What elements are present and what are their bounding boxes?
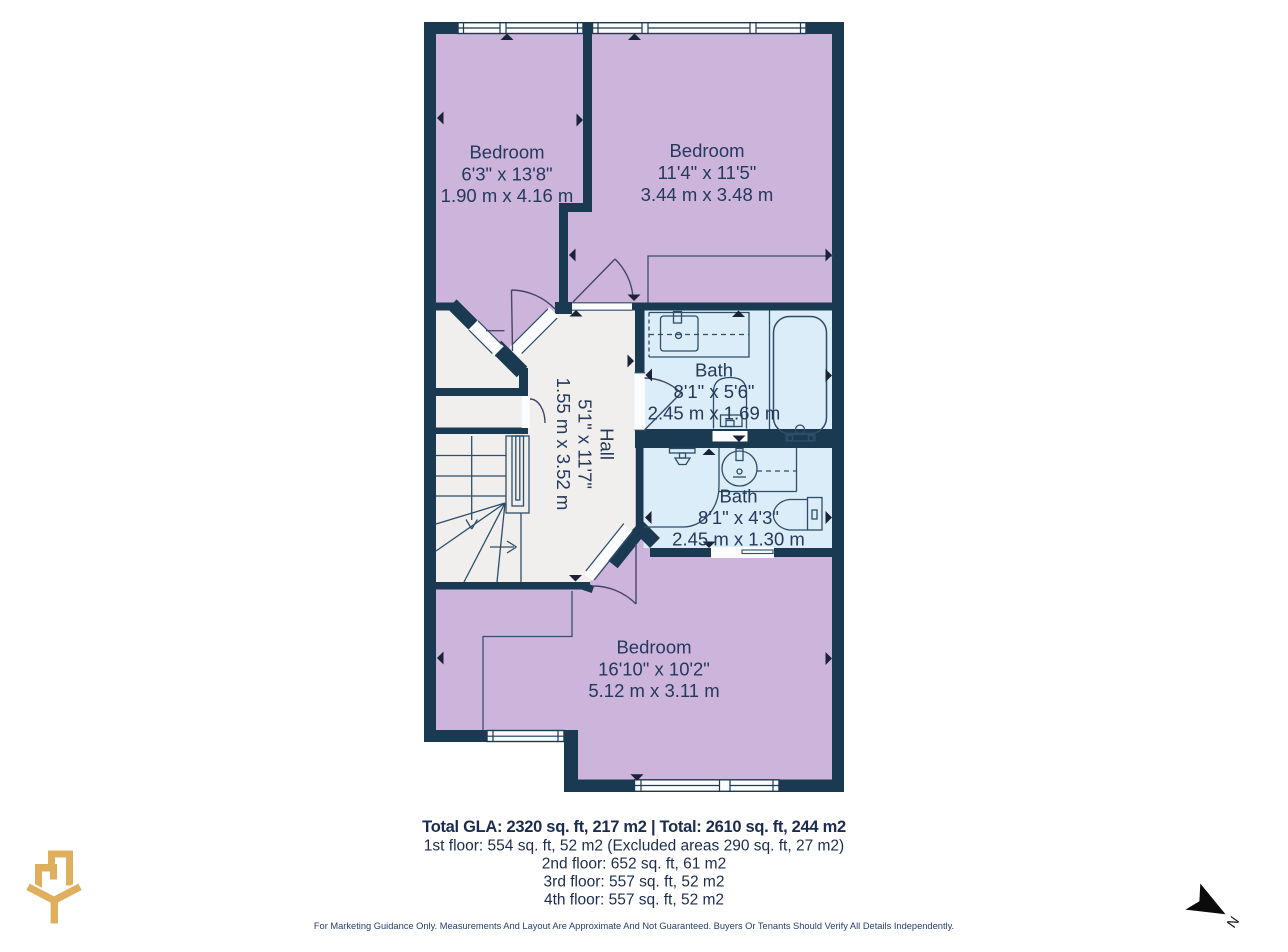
svg-text:Total GLA: 2320 sq. ft, 217 m2: Total GLA: 2320 sq. ft, 217 m2 | Total: … (422, 818, 846, 836)
svg-text:4th floor: 557 sq. ft, 52 m2: 4th floor: 557 sq. ft, 52 m2 (544, 892, 724, 909)
svg-text:Bedroom: Bedroom (616, 637, 691, 658)
svg-text:5'1" x 11'7": 5'1" x 11'7" (575, 399, 596, 489)
svg-text:For Marketing Guidance Only. M: For Marketing Guidance Only. Measurement… (314, 921, 954, 931)
svg-text:1st floor: 554 sq. ft, 52 m2 (: 1st floor: 554 sq. ft, 52 m2 (Excluded a… (424, 838, 844, 855)
svg-text:Bedroom: Bedroom (669, 140, 744, 161)
svg-text:8'1" x 4'3": 8'1" x 4'3" (698, 507, 779, 528)
svg-text:1.90 m x 4.16 m: 1.90 m x 4.16 m (441, 185, 574, 206)
svg-text:11'4" x 11'5": 11'4" x 11'5" (658, 162, 757, 183)
svg-text:5.12 m x 3.11 m: 5.12 m x 3.11 m (588, 680, 719, 701)
svg-text:Bedroom: Bedroom (469, 142, 544, 163)
svg-text:1.55 m x 3.52 m: 1.55 m x 3.52 m (553, 378, 574, 511)
svg-text:6'3" x 13'8": 6'3" x 13'8" (461, 163, 552, 184)
svg-text:8'1" x 5'6": 8'1" x 5'6" (674, 381, 755, 402)
svg-text:Hall: Hall (597, 428, 618, 460)
svg-text:3rd floor: 557 sq. ft, 52 m2: 3rd floor: 557 sq. ft, 52 m2 (544, 874, 725, 891)
svg-text:2.45 m x 1.30 m: 2.45 m x 1.30 m (672, 529, 805, 550)
svg-text:N: N (1224, 913, 1243, 930)
svg-text:Bath: Bath (719, 486, 757, 507)
svg-text:2nd floor: 652 sq. ft, 61 m2: 2nd floor: 652 sq. ft, 61 m2 (542, 856, 726, 873)
svg-text:Bath: Bath (695, 360, 733, 381)
svg-text:2.45 m x 1.69 m: 2.45 m x 1.69 m (648, 403, 781, 424)
svg-text:3.44 m x 3.48 m: 3.44 m x 3.48 m (641, 184, 774, 205)
svg-text:16'10" x 10'2": 16'10" x 10'2" (598, 658, 710, 679)
